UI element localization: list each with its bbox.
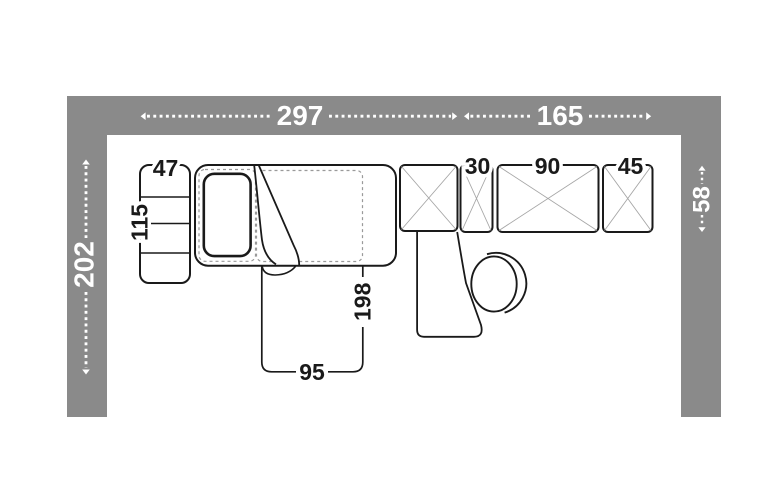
svg-text:90: 90 bbox=[535, 153, 561, 179]
svg-text:115: 115 bbox=[127, 204, 153, 241]
svg-text:198: 198 bbox=[350, 282, 376, 321]
svg-text:58: 58 bbox=[689, 186, 716, 213]
svg-text:45: 45 bbox=[618, 153, 644, 179]
svg-text:297: 297 bbox=[277, 100, 324, 131]
svg-text:47: 47 bbox=[153, 155, 179, 181]
svg-text:95: 95 bbox=[299, 359, 325, 385]
svg-text:30: 30 bbox=[465, 153, 491, 179]
svg-text:165: 165 bbox=[537, 100, 584, 131]
svg-text:202: 202 bbox=[69, 241, 100, 288]
